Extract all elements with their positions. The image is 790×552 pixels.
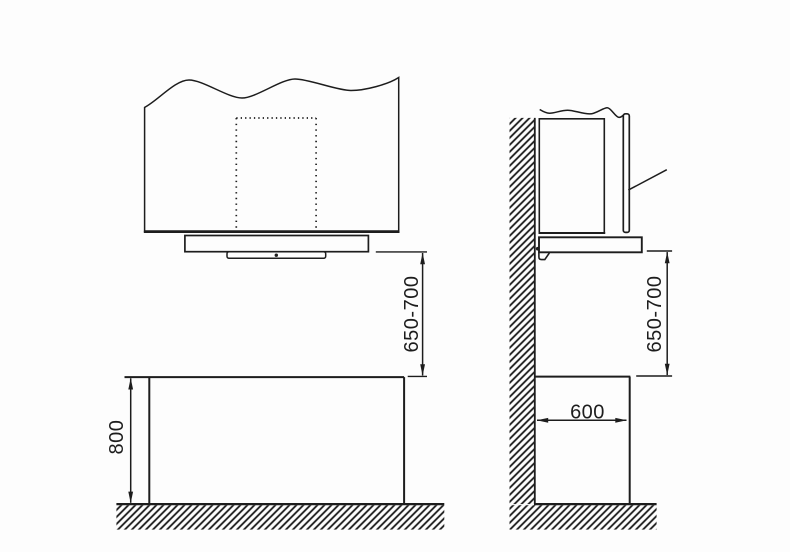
svg-text:650-700: 650-700: [401, 276, 423, 353]
svg-text:650-700: 650-700: [644, 276, 666, 353]
svg-text:600: 600: [570, 401, 605, 423]
svg-text:800: 800: [106, 420, 128, 455]
